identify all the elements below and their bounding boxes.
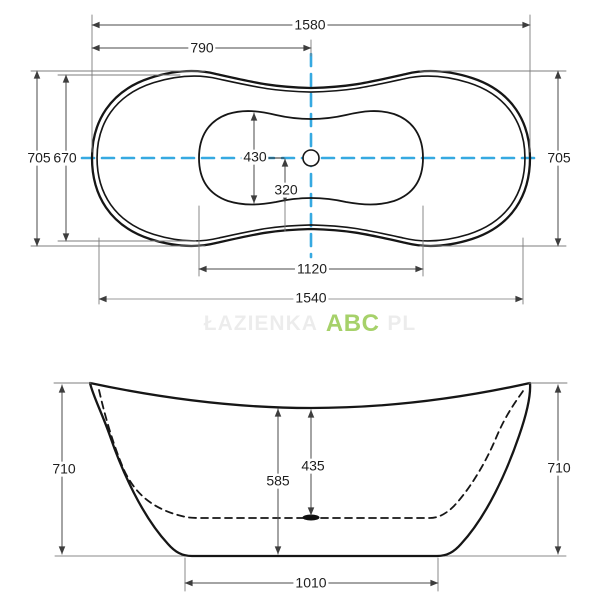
side-view-dimension-lines [62,385,558,583]
watermark-brand-logo: ABC [326,310,380,338]
watermark-prefix: ŁAZIENKA [204,312,318,336]
dim-label-basin-width: 430 [241,150,268,165]
drain-circle [303,150,319,166]
dim-label-width-left: 705 [25,151,52,166]
technical-drawing-canvas: 1580 790 705 670 705 430 320 1120 1540 7… [0,0,600,600]
dim-label-base-length: 1010 [293,576,328,591]
dim-label-depth-to-floor: 585 [264,474,291,489]
dim-label-height-left: 710 [50,462,77,477]
watermark-suffix: PL [387,312,416,336]
dim-label-basin-length: 1120 [295,262,329,277]
dim-label-lower-length: 1540 [293,291,328,306]
top-view-dimension-lines [37,25,558,299]
dim-label-depth-to-drain: 435 [299,459,326,474]
dim-label-half-length: 790 [188,41,215,56]
dim-label-height-right: 710 [545,461,572,476]
dim-label-width-right: 705 [545,151,572,166]
dim-label-inner-width: 670 [51,151,78,166]
dim-label-basin-half-width: 320 [272,183,299,198]
watermark: ŁAZIENKA ABC PL [204,310,417,338]
side-view [54,383,567,591]
dim-label-overall-length: 1580 [292,18,327,33]
